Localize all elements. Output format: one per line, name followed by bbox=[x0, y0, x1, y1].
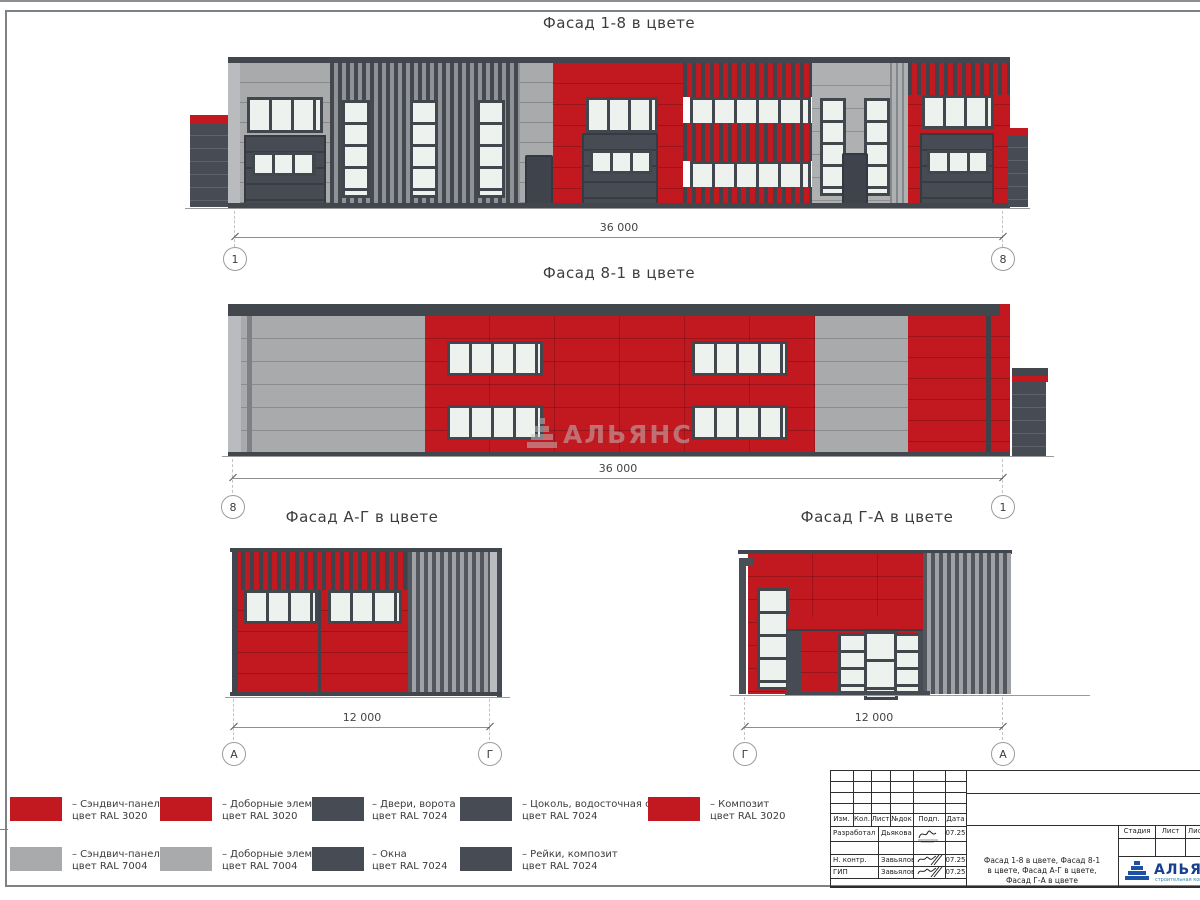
alliance-logo-subtext: строительная компания bbox=[1155, 877, 1200, 883]
legend-swatch bbox=[160, 797, 212, 821]
legend-label: – Двери, ворота цвет RAL 7024 bbox=[372, 799, 456, 823]
f1-slat-window-3 bbox=[477, 100, 505, 198]
signature bbox=[915, 854, 943, 866]
f1-red-slat-band-mid bbox=[683, 123, 812, 161]
stamp-role: Разработал bbox=[831, 826, 879, 841]
stamp-line bbox=[830, 886, 1200, 888]
f4-downpipe bbox=[739, 566, 746, 694]
watermark-text: АЛЬЯНС bbox=[563, 420, 693, 449]
stamp-col-list: Лист bbox=[871, 813, 890, 826]
stamp-sheet-content: Фасад 1-8 в цвете, Фасад 8-1 в цвете, Фа… bbox=[967, 855, 1117, 886]
f1-entrance-door bbox=[842, 153, 868, 207]
stamp-date: 07.25 bbox=[945, 826, 966, 841]
stamp-logo-cell: АЛЬЯНС строительная компания bbox=[1119, 857, 1200, 886]
f4-tall-window bbox=[757, 588, 789, 690]
stamp-role: Н. контр. bbox=[831, 854, 879, 866]
stamp-stage-header: Стадия bbox=[1119, 826, 1155, 837]
f4-ground-line bbox=[730, 695, 1090, 696]
f4-dimension-line bbox=[745, 727, 1003, 728]
legend-swatch bbox=[10, 797, 62, 821]
alliance-logo-text: АЛЬЯНС bbox=[1154, 862, 1200, 878]
stamp-line bbox=[1118, 838, 1200, 839]
f4-entrance-canopy bbox=[787, 617, 928, 629]
f4-entrance-column-left bbox=[787, 631, 801, 692]
f2-annex-fascia bbox=[1012, 368, 1048, 376]
stamp-listov-header: Листов bbox=[1186, 826, 1200, 837]
f1-garage-door-right bbox=[920, 133, 994, 207]
stamp-date: 07.25 bbox=[945, 866, 966, 878]
f3-corner-flashing bbox=[490, 552, 497, 695]
f2-downpipe-left bbox=[247, 316, 252, 456]
legend-label: – Окна цвет RAL 7024 bbox=[372, 849, 447, 873]
legend-swatch bbox=[10, 847, 62, 871]
f3-dimension-label: 12 000 bbox=[234, 711, 490, 724]
stamp-col-kol: Кол. bbox=[853, 813, 871, 826]
f1-axis-circle-left: 1 bbox=[223, 247, 247, 271]
f3-corner-edge bbox=[497, 552, 502, 697]
stamp-name: Завьялова bbox=[879, 866, 914, 878]
stamp-line bbox=[830, 878, 966, 879]
f4-downpipe-elbow bbox=[739, 558, 753, 566]
legend-label: – Композит цвет RAL 3020 bbox=[710, 799, 785, 823]
legend-swatch bbox=[460, 847, 512, 871]
legend-swatch bbox=[312, 847, 364, 871]
f2-panel-section-mid bbox=[815, 316, 908, 456]
facade-a-g-title: Фасад А-Г в цвете bbox=[212, 508, 512, 526]
legend-swatch bbox=[312, 797, 364, 821]
f1-red-window bbox=[586, 97, 658, 133]
f2-watermark: АЛЬЯНС bbox=[527, 412, 737, 458]
f1-red-slat-band-right bbox=[908, 63, 1010, 95]
f1-right-annex bbox=[1008, 135, 1028, 207]
stamp-role: ГИП bbox=[831, 866, 879, 878]
signature bbox=[915, 866, 943, 878]
f1-garage-door-red-glazing bbox=[590, 150, 652, 174]
f4-entrance-door bbox=[864, 631, 898, 700]
legend-swatch bbox=[460, 797, 512, 821]
f3-window-2 bbox=[328, 590, 402, 624]
f3-axis-circle-right: Г bbox=[478, 742, 502, 766]
f2-right-annex bbox=[1012, 382, 1046, 456]
f1-ground-line bbox=[185, 208, 1030, 209]
stamp-col-ndok: №док bbox=[890, 813, 913, 826]
f2-fascia-red-tip bbox=[1000, 304, 1010, 316]
f1-slat-window-2 bbox=[410, 100, 438, 198]
facade-1-8-title: Фасад 1-8 в цвете bbox=[319, 14, 919, 32]
stamp-col-data: Дата bbox=[945, 813, 966, 826]
f2-window-1 bbox=[447, 341, 543, 376]
legend-swatch bbox=[648, 797, 700, 821]
stamp-name: Завьялова bbox=[879, 854, 914, 866]
f2-corner-pilaster bbox=[228, 316, 241, 456]
f2-window-3 bbox=[692, 341, 788, 376]
f1-red-slat-band-bottom bbox=[683, 187, 812, 203]
legend-label: – Сэндвич-панели цвет RAL 3020 bbox=[72, 799, 166, 823]
f2-downpipe-right bbox=[986, 316, 991, 456]
f3-door-divider bbox=[318, 590, 321, 695]
f2-dimension-label: 36 000 bbox=[233, 462, 1003, 475]
f1-pilaster-strips bbox=[890, 63, 908, 203]
f1-right-annex-flashing bbox=[1008, 128, 1028, 135]
f1-dimension-label: 36 000 bbox=[235, 221, 1003, 234]
f3-slat-section bbox=[408, 552, 490, 695]
f4-axis-circle-left: Г bbox=[733, 742, 757, 766]
f2-panel-section-left bbox=[228, 316, 425, 456]
f3-plinth bbox=[230, 692, 502, 696]
f1-red-slat-band-top bbox=[683, 63, 812, 97]
f1-service-door bbox=[525, 155, 553, 207]
f1-axis-circle-right: 8 bbox=[991, 247, 1015, 271]
legend-swatch bbox=[160, 847, 212, 871]
f3-axis-circle-left: А bbox=[222, 742, 246, 766]
frame-fold-mark bbox=[0, 829, 8, 830]
page-top-rule bbox=[0, 0, 1200, 2]
f1-left-annex-flashing bbox=[190, 115, 230, 123]
stamp-date: 07.25 bbox=[945, 854, 966, 866]
stamp-line bbox=[966, 793, 1200, 794]
signature bbox=[916, 827, 942, 843]
f1-garage-door-left bbox=[244, 135, 326, 207]
f1-garage-door-red bbox=[582, 133, 658, 207]
f1-red-window-right bbox=[922, 95, 994, 129]
facade-g-a-title: Фасад Г-А в цвете bbox=[727, 508, 1027, 526]
f2-dimension-line bbox=[233, 478, 1003, 479]
f2-red-section-right bbox=[908, 316, 1010, 456]
f1-garage-door-left-glazing bbox=[252, 152, 316, 176]
f4-axis-circle-right: А bbox=[991, 742, 1015, 766]
f1-slat-window-1 bbox=[342, 100, 370, 198]
stamp-name: Дьякова bbox=[879, 826, 914, 841]
f1-window-left bbox=[247, 97, 323, 133]
legend-label: – Рейки, композит цвет RAL 7024 bbox=[522, 849, 618, 873]
legend-label: – Сэндвич-панели цвет RAL 7004 bbox=[72, 849, 166, 873]
f2-roof-fascia bbox=[228, 304, 1010, 316]
watermark-triangle-logo bbox=[527, 416, 557, 452]
f4-entrance-red-wall bbox=[801, 631, 838, 692]
f3-window-1 bbox=[244, 590, 318, 624]
stamp-list-header: Лист bbox=[1156, 826, 1185, 837]
f4-dimension-label: 12 000 bbox=[745, 711, 1003, 724]
facade-8-1-title: Фасад 8-1 в цвете bbox=[319, 264, 919, 282]
f1-garage-door-right-glazing bbox=[927, 150, 989, 174]
f3-ground-line bbox=[225, 697, 510, 698]
stamp-col-izm: Изм. bbox=[830, 813, 853, 826]
f3-left-edge bbox=[232, 552, 238, 695]
alliance-logo-icon bbox=[1124, 859, 1150, 885]
stamp-line bbox=[830, 770, 1200, 771]
f3-dimension-line bbox=[234, 727, 490, 728]
f1-left-annex bbox=[190, 123, 228, 207]
f4-slat-section bbox=[923, 553, 1011, 694]
stamp-col-podp: Подп. bbox=[913, 813, 945, 826]
f3-red-slat-band bbox=[232, 552, 408, 590]
f1-corner-pilaster bbox=[228, 63, 240, 203]
f1-dimension-line bbox=[235, 237, 1003, 238]
